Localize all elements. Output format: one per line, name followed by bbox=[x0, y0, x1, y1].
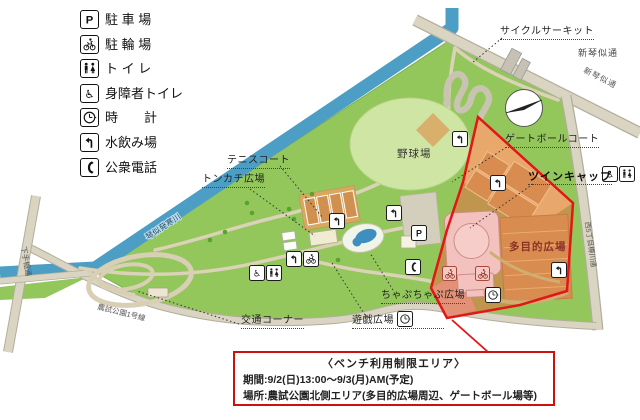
legend-label-parking: 駐 車 場 bbox=[105, 10, 151, 29]
notice-title: 〈ベンチ利用制限エリア〉 bbox=[243, 355, 545, 371]
label-chapuchapu-plaza: ちゃぷちゃぷ広場 bbox=[381, 290, 465, 304]
label-traffic-corner: 交通コーナー bbox=[241, 315, 304, 329]
legend-label-accessible-toilet: 身障者トイレ bbox=[105, 84, 183, 103]
legend-item-bicycle-parking: 駐 輪 場 bbox=[80, 35, 183, 54]
legend-label-toilet: ト イ レ bbox=[105, 59, 151, 78]
legend-item-parking: 駐 車 場 bbox=[80, 10, 183, 29]
legend-label-public-phone: 公衆電話 bbox=[105, 158, 157, 177]
notice-connector-line bbox=[452, 320, 488, 352]
legend-label-bicycle-parking: 駐 輪 場 bbox=[105, 35, 151, 54]
drinking-fountain-icon bbox=[490, 175, 506, 191]
clock-icon bbox=[485, 287, 501, 303]
label-twin-cap: ツインキャップ bbox=[528, 171, 612, 185]
label-shinkotoni-street: 新琴似通 bbox=[578, 47, 618, 59]
drinking-fountain-icon bbox=[386, 205, 402, 221]
toilet-icon bbox=[619, 166, 635, 182]
label-baseball-field: 野球場 bbox=[397, 148, 432, 160]
drinking-fountain-icon bbox=[329, 213, 345, 229]
legend-label-clock: 時 計 bbox=[105, 108, 157, 127]
legend-item-toilet: ト イ レ bbox=[80, 59, 183, 78]
accessible-toilet-icon bbox=[80, 84, 99, 103]
bicycle-parking-icon bbox=[303, 251, 319, 267]
parking-icon bbox=[411, 225, 427, 241]
legend-item-drinking-fountain: 水飲み場 bbox=[80, 133, 183, 152]
compass-icon bbox=[506, 90, 543, 127]
clock-icon bbox=[80, 108, 99, 127]
public-phone-icon bbox=[80, 158, 99, 177]
legend: 駐 車 場 駐 輪 場 ト イ レ 身障者トイレ 時 計 水飲み場 公衆電話 bbox=[80, 10, 183, 182]
label-multipurpose-plaza: 多目的広場 bbox=[509, 241, 567, 253]
drinking-fountain-icon bbox=[551, 262, 567, 278]
drinking-fountain-icon bbox=[80, 133, 99, 152]
drinking-fountain-icon bbox=[286, 251, 302, 267]
label-gateball-court: ゲートボールコート bbox=[505, 134, 599, 148]
label-tonkachi-plaza: トンカチ広場 bbox=[202, 174, 265, 188]
road-label-shinkotoni-on-road: 新琴似通 bbox=[582, 65, 619, 90]
legend-item-clock: 時 計 bbox=[80, 108, 183, 127]
bicycle-parking-icon bbox=[475, 266, 490, 281]
legend-label-drinking-fountain: 水飲み場 bbox=[105, 133, 157, 152]
bicycle-parking-icon bbox=[80, 35, 99, 54]
public-phone-icon bbox=[405, 259, 421, 275]
notice-place: 場所:農試公園北側エリア(多目的広場周辺、ゲートボール場等) bbox=[243, 388, 545, 403]
legend-item-public-phone: 公衆電話 bbox=[80, 158, 183, 177]
drinking-fountain-icon bbox=[452, 131, 468, 147]
park-map-page: 新琴似通 西5丁目樽川通 下手稲通 農試公園1号線 琴似発寒川 駐 車 場 駐 … bbox=[0, 0, 640, 420]
notice-period: 期間:9/2(日)13:00～9/3(月)AM(予定) bbox=[243, 372, 545, 387]
accessible-toilet-icon bbox=[249, 265, 265, 281]
parking-icon bbox=[80, 10, 99, 29]
bench-restriction-notice: 〈ベンチ利用制限エリア〉 期間:9/2(日)13:00～9/3(月)AM(予定)… bbox=[233, 351, 555, 406]
bicycle-parking-icon bbox=[442, 266, 457, 281]
multipurpose-field bbox=[500, 214, 572, 301]
toilet-icon bbox=[80, 59, 99, 78]
label-cycle-circuit: サイクルサーキット bbox=[500, 26, 594, 40]
legend-item-accessible-toilet: 身障者トイレ bbox=[80, 84, 183, 103]
label-play-plaza: 遊戯広場 bbox=[352, 315, 444, 329]
label-tennis-court: テニスコート bbox=[227, 155, 290, 169]
toilet-icon bbox=[266, 265, 282, 281]
